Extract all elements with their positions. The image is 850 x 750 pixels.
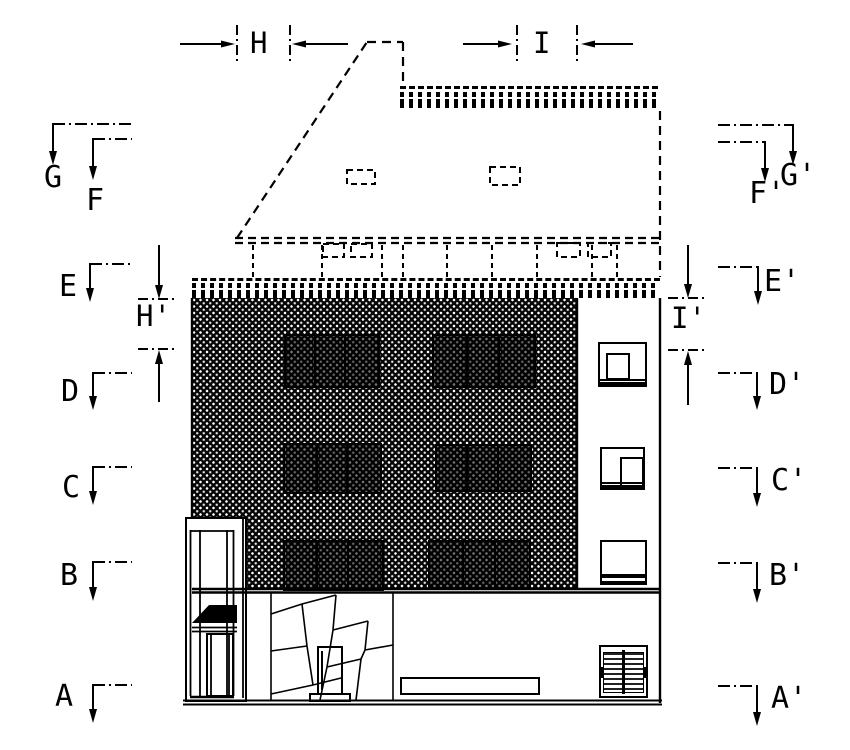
- ground-line: [183, 701, 662, 705]
- section-label-d: D: [61, 377, 79, 407]
- linework-layer: [0, 0, 850, 750]
- section-marker-b-prime: [718, 562, 761, 603]
- section-label-a-prime: A': [771, 684, 807, 714]
- entrance-canopy: [192, 605, 237, 623]
- section-label-b: B: [60, 561, 78, 591]
- section-marker-d-prime: [718, 372, 761, 410]
- roof-outline-dashed: [237, 42, 660, 277]
- stair-tower-details: [190, 519, 243, 698]
- section-marker-b: [89, 561, 132, 601]
- section-marker-d: [89, 372, 132, 410]
- dimension-label-h: H: [250, 29, 267, 58]
- section-label-d-prime: D': [769, 370, 805, 400]
- dimension-label-h-prime: H': [136, 302, 171, 331]
- dimension-label-i: I: [533, 29, 550, 58]
- section-marker-e-prime: [718, 266, 762, 305]
- section-label-c-prime: C': [771, 466, 807, 496]
- dimension-label-i-prime: I': [671, 304, 706, 333]
- section-marker-g: [49, 123, 132, 165]
- section-label-f: F: [86, 186, 104, 216]
- entrance-pedestal: [310, 647, 350, 701]
- section-marker-e: [86, 263, 132, 302]
- section-label-f-prime: F': [749, 179, 785, 209]
- section-label-a: A: [55, 682, 73, 712]
- rooftop-equipment-dashed: [323, 167, 611, 257]
- section-marker-c: [89, 466, 132, 505]
- section-label-e: E: [59, 272, 77, 302]
- section-marker-a-prime: [718, 685, 761, 726]
- section-marker-c-prime: [718, 467, 761, 507]
- building-outline: [192, 298, 660, 703]
- section-label-e-prime: E': [764, 267, 800, 297]
- section-marker-f: [89, 138, 132, 180]
- section-label-b-prime: B': [769, 561, 805, 591]
- setback-supports-dashed: [253, 245, 617, 277]
- setback-floor-dashed: [235, 238, 660, 243]
- elevation-drawing: G F E D C B A G' F' E' D' C' B' A' H I H…: [0, 0, 850, 750]
- section-label-g-prime: G': [780, 161, 816, 191]
- section-label-g: G: [44, 163, 62, 193]
- section-marker-a: [89, 684, 132, 723]
- section-label-c: C: [62, 473, 80, 503]
